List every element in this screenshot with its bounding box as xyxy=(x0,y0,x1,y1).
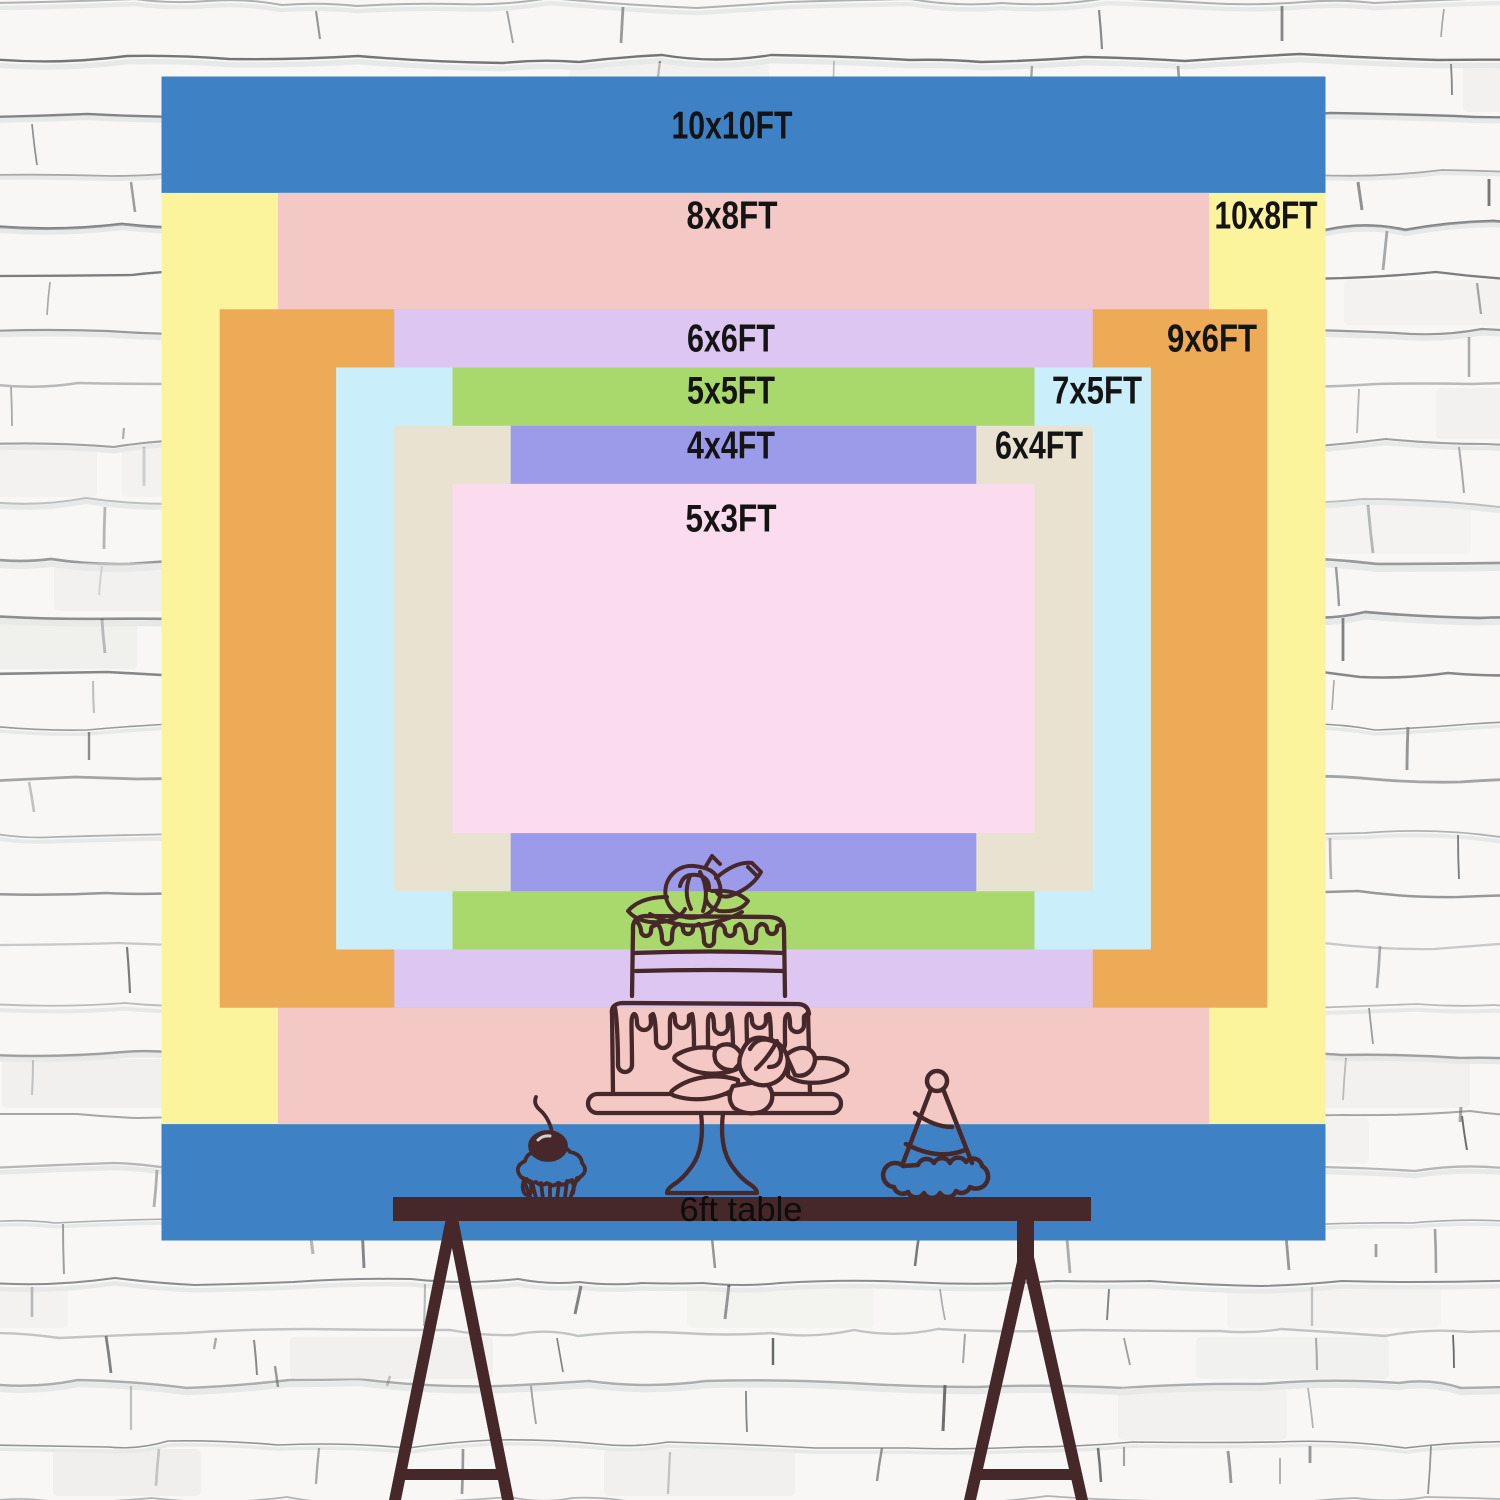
svg-text:5x5FT: 5x5FT xyxy=(687,370,775,413)
svg-text:10x8FT: 10x8FT xyxy=(1215,195,1318,238)
svg-text:10x10FT: 10x10FT xyxy=(672,105,793,148)
svg-text:8x8FT: 8x8FT xyxy=(687,195,778,238)
svg-text:6ft table: 6ft table xyxy=(680,1191,803,1229)
svg-text:5x3FT: 5x3FT xyxy=(686,498,777,541)
svg-text:9x6FT: 9x6FT xyxy=(1167,318,1257,361)
svg-text:7x5FT: 7x5FT xyxy=(1052,370,1142,413)
svg-text:6x4FT: 6x4FT xyxy=(995,425,1083,468)
svg-text:4x4FT: 4x4FT xyxy=(687,425,775,468)
svg-text:6x6FT: 6x6FT xyxy=(687,318,775,361)
